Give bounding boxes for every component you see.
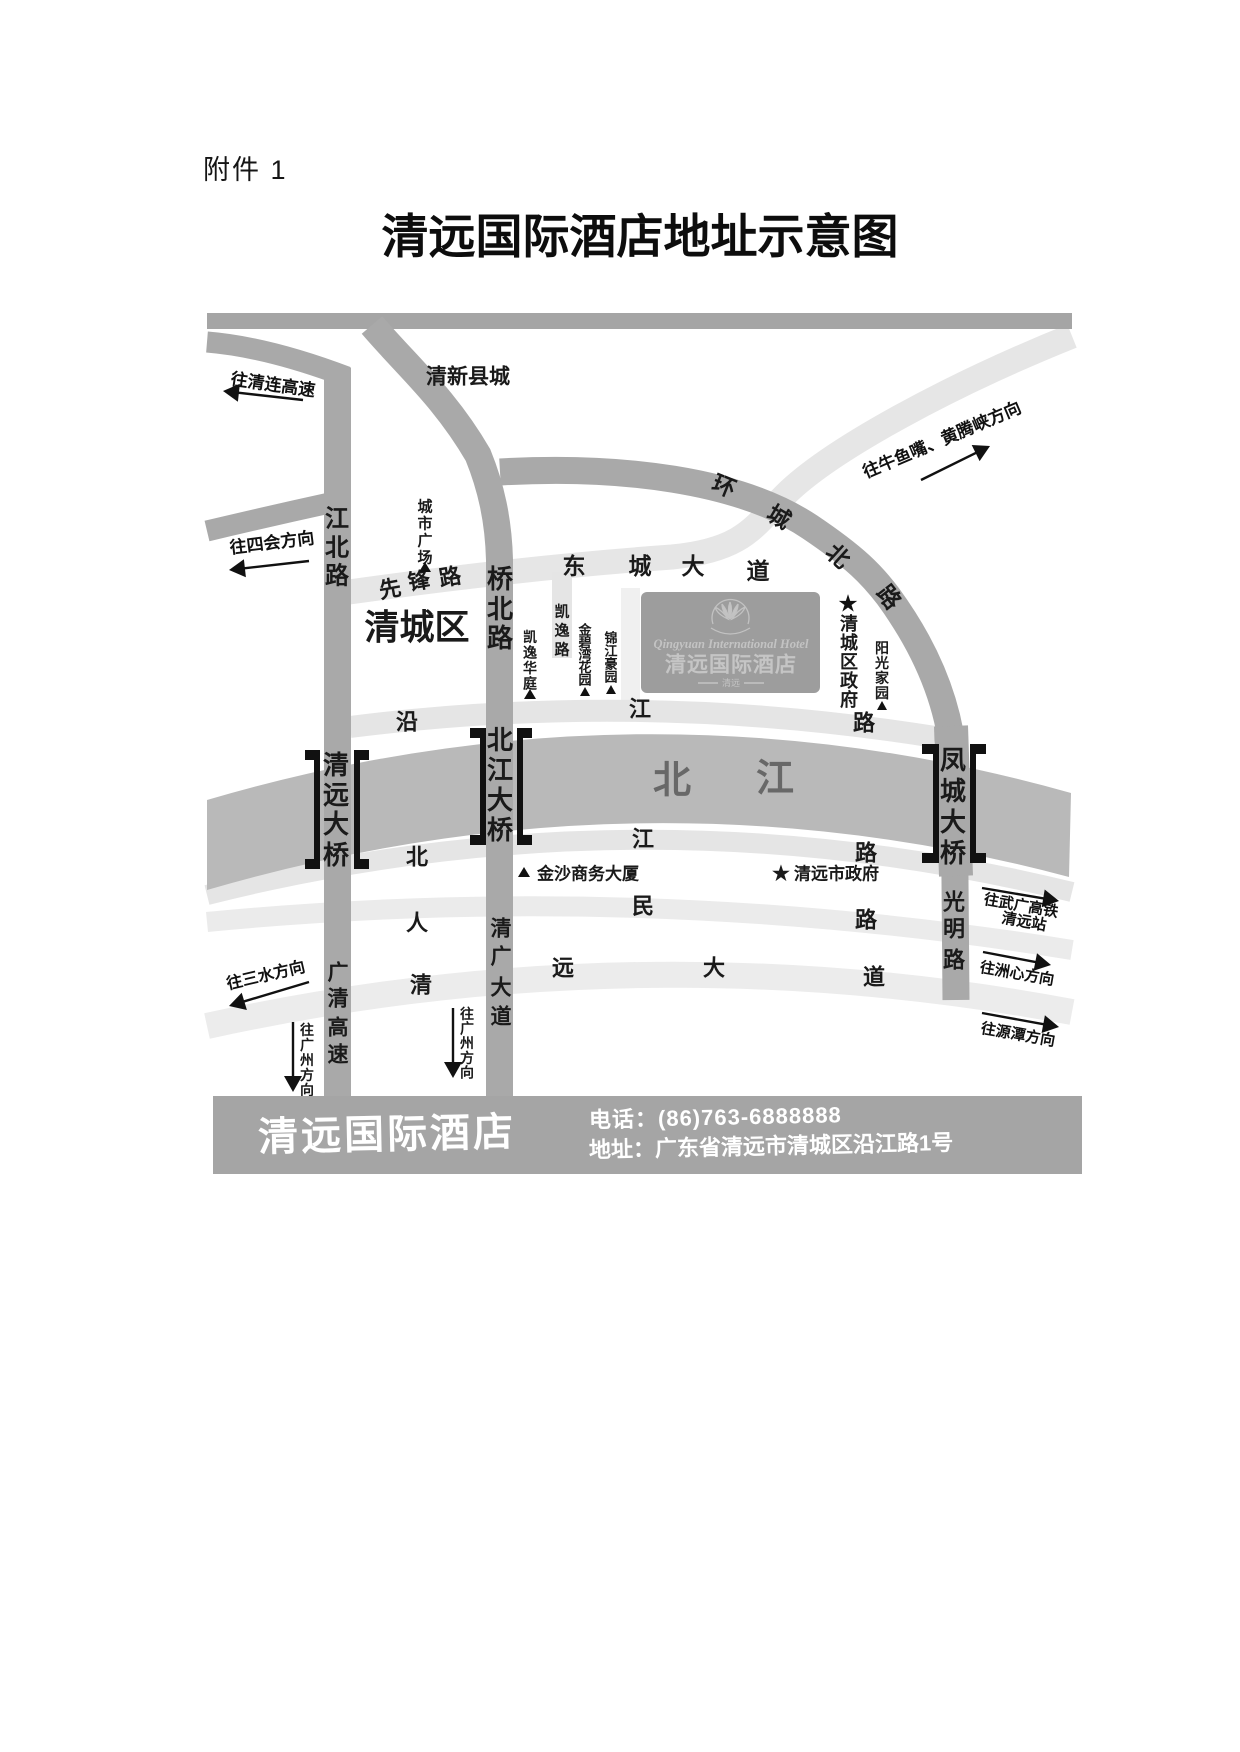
svg-text:江: 江 [629,697,651,722]
svg-text:路: 路 [855,841,878,866]
svg-text:州: 州 [459,1035,474,1051]
svg-text:广: 广 [328,961,349,985]
svg-text:清: 清 [491,917,512,941]
svg-text:往: 往 [300,1022,314,1038]
svg-text:道: 道 [863,965,885,990]
svg-text:庭: 庭 [523,676,538,692]
svg-text:东: 东 [563,553,586,579]
svg-text:大: 大 [703,956,725,981]
svg-text:大: 大 [491,977,512,1000]
svg-text:市: 市 [417,515,432,533]
svg-text:清远国际酒店: 清远国际酒店 [665,653,797,677]
svg-text:园: 园 [875,685,889,701]
svg-text:人: 人 [406,911,428,936]
svg-text:路: 路 [853,711,876,736]
svg-text:江: 江 [325,506,349,533]
svg-text:广: 广 [491,945,512,969]
svg-text:民: 民 [632,894,654,919]
svg-text:北: 北 [487,725,513,755]
svg-text:★: ★ [772,863,790,885]
svg-text:桥: 桥 [323,840,350,870]
svg-text:府: 府 [840,689,858,710]
svg-text:城: 城 [417,498,432,516]
svg-text:路: 路 [325,562,350,590]
svg-text:桥: 桥 [487,564,514,594]
svg-text:电话：(86)763-6888888: 电话：(86)763-6888888 [589,1102,842,1132]
svg-text:凯: 凯 [554,603,569,621]
svg-text:高: 高 [328,1016,349,1040]
svg-text:大: 大 [682,553,705,579]
svg-text:江: 江 [756,758,794,800]
svg-text:光: 光 [874,655,889,671]
svg-text:清: 清 [328,987,349,1011]
svg-text:向: 向 [460,1064,474,1080]
svg-text:往: 往 [460,1006,474,1022]
svg-text:华: 华 [523,660,537,676]
svg-text:广: 广 [417,532,432,550]
svg-text:清远国际酒店: 清远国际酒店 [258,1110,517,1159]
svg-text:大: 大 [323,809,349,839]
svg-text:政: 政 [840,670,859,691]
svg-text:桥: 桥 [487,815,514,845]
svg-text:道: 道 [747,558,770,584]
svg-text:清远市政府: 清远市政府 [794,864,879,884]
svg-text:逸: 逸 [554,622,569,640]
svg-text:沿: 沿 [396,710,418,735]
svg-text:江: 江 [632,827,654,852]
svg-text:广: 广 [460,1021,474,1037]
svg-text:桥: 桥 [940,838,967,868]
svg-text:凯: 凯 [523,629,537,645]
svg-text:州: 州 [299,1052,314,1068]
svg-text:城: 城 [940,776,966,806]
svg-text:附件 1: 附件 1 [203,155,288,185]
svg-text:远: 远 [323,780,349,810]
svg-text:先: 先 [377,575,403,603]
svg-text:清城区: 清城区 [364,609,469,648]
svg-text:清远国际酒店地址示意图: 清远国际酒店地址示意图 [382,212,899,264]
svg-text:清: 清 [840,614,858,634]
svg-text:Qingyuan International Hotel: Qingyuan International Hotel [654,637,809,651]
svg-text:远: 远 [552,956,574,981]
svg-text:城: 城 [840,632,858,653]
svg-text:路: 路 [554,641,570,659]
svg-text:清新县城: 清新县城 [426,365,510,389]
svg-text:北: 北 [325,535,349,562]
svg-text:北: 北 [406,845,428,870]
svg-text:道: 道 [491,1005,512,1029]
svg-text:方: 方 [300,1067,314,1083]
svg-text:清远: 清远 [722,677,740,688]
svg-text:速: 速 [328,1044,349,1067]
svg-text:金沙商务大厦: 金沙商务大厦 [536,864,640,884]
svg-text:阳: 阳 [875,640,889,656]
svg-text:家: 家 [875,670,890,686]
svg-text:北: 北 [653,760,691,802]
svg-text:江: 江 [487,755,513,785]
svg-text:凤: 凤 [940,745,966,775]
svg-text:广: 广 [300,1037,314,1053]
svg-text:路: 路 [943,948,966,973]
svg-text:路: 路 [487,623,514,653]
svg-text:逸: 逸 [523,645,537,661]
svg-text:光: 光 [942,890,965,915]
svg-text:路: 路 [855,908,878,933]
svg-text:向: 向 [300,1082,314,1098]
svg-text:清: 清 [410,973,432,998]
svg-text:清: 清 [323,750,349,780]
svg-text:大: 大 [487,785,513,815]
svg-text:园: 园 [604,670,617,685]
svg-text:明: 明 [943,917,965,942]
svg-text:区: 区 [840,652,858,672]
svg-text:城: 城 [629,553,652,579]
svg-text:北: 北 [487,594,513,624]
svg-text:方: 方 [460,1050,474,1066]
svg-text:大: 大 [940,807,966,837]
svg-text:园: 园 [578,673,591,688]
